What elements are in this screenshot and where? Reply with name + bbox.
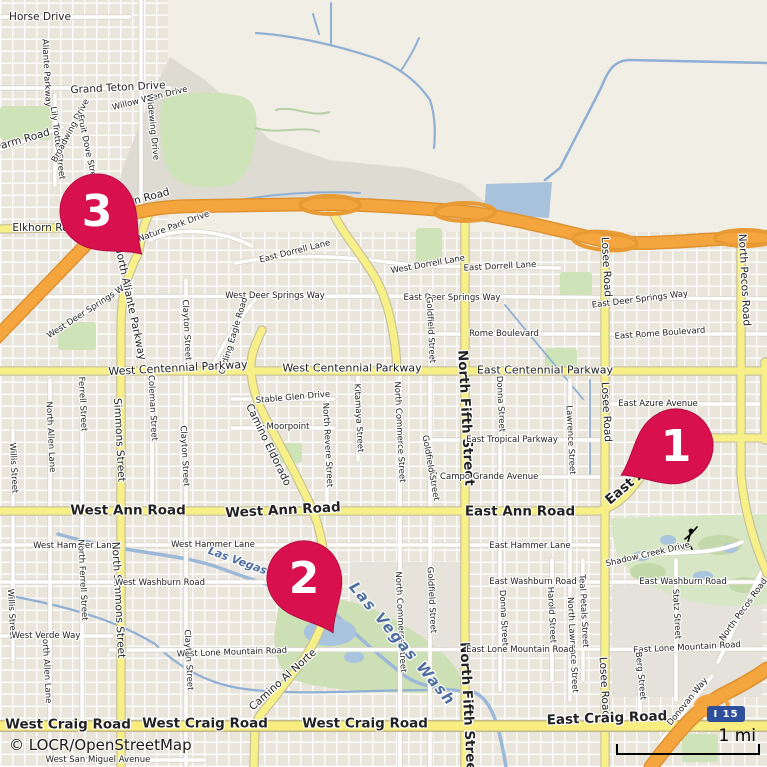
road-label: Losee Road xyxy=(597,657,611,718)
road-label: West Washburn Road xyxy=(115,579,205,588)
road-label: East Rome Boulevard xyxy=(614,327,705,342)
road-label: North Commerce Street xyxy=(392,381,406,482)
road-label: Statz Street xyxy=(670,589,681,640)
road-label: West Dorrell Lane xyxy=(390,254,466,275)
map-marker-1[interactable]: 1 xyxy=(614,384,738,508)
road-label: North Fifth Street xyxy=(457,642,478,767)
road-label: Goldfield Street xyxy=(420,435,440,502)
road-label: Clayton Street xyxy=(180,299,192,360)
road-label: North Pecos Road xyxy=(736,234,751,327)
map-attribution: © LOCR/OpenStreetMap xyxy=(9,736,192,754)
road-label: Aliante Parkway xyxy=(40,39,52,107)
road-label: East Dorrell Lane xyxy=(463,261,536,273)
road-label: West Centennial Parkway xyxy=(282,363,421,374)
road-label: Moorpoint xyxy=(267,423,310,432)
road-label: North Allen Lane xyxy=(44,401,56,472)
map-viewport[interactable]: Horse DriveGrand Teton DriveWillow Wren … xyxy=(0,0,767,767)
road-label: West Craig Road xyxy=(5,718,131,732)
road-label: West Verde Way xyxy=(12,632,81,641)
road-label: North Ferrell Street xyxy=(76,539,89,621)
interstate-15-shield: I 15 xyxy=(707,706,745,722)
road-label: Kitamaya Street xyxy=(352,383,364,452)
road-label: Ferrell Street xyxy=(76,376,87,431)
road-label: East Tropical Parkway xyxy=(466,436,558,445)
road-label: West Ann Road xyxy=(70,504,186,518)
road-label: Donna Street xyxy=(494,376,505,433)
road-label: North Allen Lane xyxy=(40,632,52,703)
road-label: East Dorrell Lane xyxy=(259,239,332,265)
marker-number: 3 xyxy=(35,149,159,273)
road-label: East Centennial Parkway xyxy=(477,365,613,376)
road-label: Losee Road xyxy=(599,382,613,443)
road-label: Goldfield Street xyxy=(425,567,437,634)
road-label: Coleman Street xyxy=(146,375,158,441)
road-label: Berg Street xyxy=(633,652,647,701)
road-label: Camino Al Norte xyxy=(248,647,319,712)
road-label: El Campo Grande Avenue xyxy=(430,473,539,482)
road-label: Lawrence Street xyxy=(564,405,576,475)
road-label: East Hammer Lane xyxy=(489,542,570,551)
road-label: Camino Eldorado xyxy=(244,402,293,487)
scale-label: 1 mi xyxy=(676,726,756,746)
road-label: Horse Drive xyxy=(9,12,71,23)
road-label: Donna Street xyxy=(497,590,508,647)
road-label: East Deer Springs Way xyxy=(404,294,501,303)
road-label: Goldfield Street xyxy=(424,297,436,364)
road-label: Harold Street xyxy=(545,587,556,644)
road-label: East Lone Mountain Road xyxy=(466,646,574,655)
marker-number: 2 xyxy=(242,516,366,640)
road-label: Donovan Way xyxy=(666,676,710,727)
road-label: East Ann Road xyxy=(465,505,575,519)
map-marker-2[interactable]: 2 xyxy=(242,516,366,640)
road-label: West Lone Mountain Road xyxy=(177,647,288,659)
road-label: East Craig Road xyxy=(546,710,667,728)
road-label: North Fifth Street xyxy=(455,350,476,487)
marker-number: 1 xyxy=(614,384,738,508)
road-label: North Revere Street xyxy=(321,403,334,488)
road-label: Clayton Street xyxy=(178,425,190,486)
road-label: Shadow Creek Drive xyxy=(605,541,691,569)
road-label: Simmons Street xyxy=(112,398,127,482)
road-label: Losee Road xyxy=(599,237,613,298)
road-label: West San Miguel Avenue xyxy=(46,756,151,765)
road-label: West Craig Road xyxy=(142,717,268,731)
road-label: Teal Petals Street xyxy=(577,574,589,648)
road-label: Willis Street xyxy=(7,442,18,493)
road-label: North Pecos Road xyxy=(719,577,767,643)
road-label: East Washburn Road xyxy=(639,578,726,587)
road-label: North Simmons Street xyxy=(110,542,127,659)
road-label: Rome Boulevard xyxy=(469,330,539,339)
map-marker-3[interactable]: 3 xyxy=(35,149,159,273)
road-label: Clayton Street xyxy=(182,629,194,690)
road-label: East Washburn Road xyxy=(489,578,576,587)
road-label: West Craig Road xyxy=(302,717,428,731)
